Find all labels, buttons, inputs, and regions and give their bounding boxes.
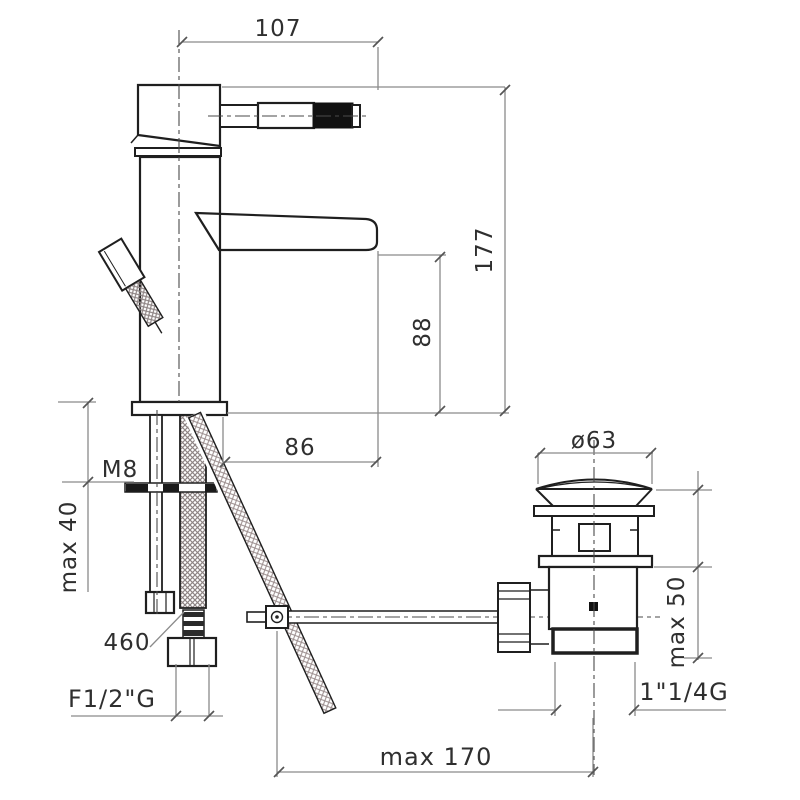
pop-up-waste <box>498 480 654 654</box>
waste-diameter-label: ø63 <box>571 428 617 454</box>
waste-mounting-flange <box>539 556 652 567</box>
faucet-body <box>131 85 221 402</box>
waste-body <box>549 567 637 629</box>
mounting-plate <box>125 483 217 492</box>
hose-fitting-ridge <box>183 612 204 617</box>
hose-thread-label: F1/2"G <box>68 685 156 713</box>
technical-drawing-canvas: 107 177 88 86 M8 max 40 460 F1/2"G ø63 m… <box>0 0 800 800</box>
base-flange <box>132 402 227 415</box>
fixing-stud <box>146 415 174 613</box>
waste-max-deck-label: max 50 <box>664 576 690 669</box>
spout <box>196 213 377 251</box>
max-deck-label: max 40 <box>56 501 82 594</box>
spout-reach-label: 86 <box>284 435 315 461</box>
waste-clamp-ring <box>553 629 637 653</box>
stud-nut <box>146 592 174 613</box>
faucet-dimension-drawing: 107 177 88 86 M8 max 40 460 F1/2"G ø63 m… <box>0 0 800 800</box>
waste-thread-label: 1"1/4G <box>639 678 729 706</box>
stud-thread-label: M8 <box>102 457 138 483</box>
rod-end-stub <box>247 612 267 622</box>
hose-length-label: 460 <box>104 630 151 656</box>
rod-max-reach-label: max 170 <box>380 743 493 771</box>
hose-fitting-ridge <box>183 621 204 626</box>
spout-projection-label: 107 <box>255 16 302 42</box>
total-height-label: 177 <box>472 227 498 274</box>
hose-fitting-ridge <box>183 630 204 636</box>
hose-nut <box>168 638 216 666</box>
spout-height-label: 88 <box>410 316 436 347</box>
